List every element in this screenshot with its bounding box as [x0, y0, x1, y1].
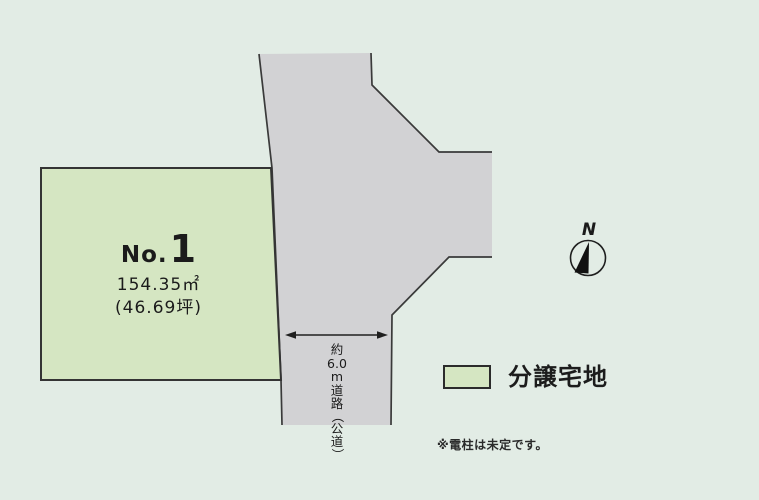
- utility-pole-note: ※電柱は未定です。: [437, 436, 548, 453]
- north-needle: [575, 242, 590, 274]
- road-width-label-char: m: [331, 370, 343, 384]
- legend: 分譲宅地: [443, 365, 608, 389]
- legend-label: 分譲宅地: [508, 365, 608, 389]
- legend-lot-swatch: [443, 365, 491, 389]
- road-width-label-char: （: [331, 410, 342, 423]
- road-width-label: 約6.0m道路（公道）: [322, 343, 352, 460]
- lot-label: No. 1 154.35㎡ (46.69坪): [41, 168, 276, 380]
- road-width-label-char: 道: [331, 384, 344, 398]
- road-width-label-char: 公: [331, 422, 344, 436]
- lot-number-prefix: No.: [121, 244, 168, 267]
- road-width-label-char: 約: [331, 343, 344, 357]
- lot-area-m2: 154.35㎡: [117, 275, 200, 295]
- lot-area-tsubo: (46.69坪): [115, 298, 202, 318]
- north-label: N: [574, 220, 604, 240]
- road-width-label-char: 路: [331, 397, 344, 411]
- road-width-label-char: 6.0: [327, 357, 347, 371]
- lot-map: No. 1 154.35㎡ (46.69坪) 約6.0m道路（公道） N 分譲宅…: [0, 0, 759, 500]
- lot-number: No. 1: [121, 230, 196, 268]
- road-width-label-char: 道: [331, 435, 344, 449]
- road-width-label-char: ）: [331, 448, 342, 461]
- north-symbol: [571, 241, 606, 276]
- lot-number-value: 1: [170, 230, 196, 268]
